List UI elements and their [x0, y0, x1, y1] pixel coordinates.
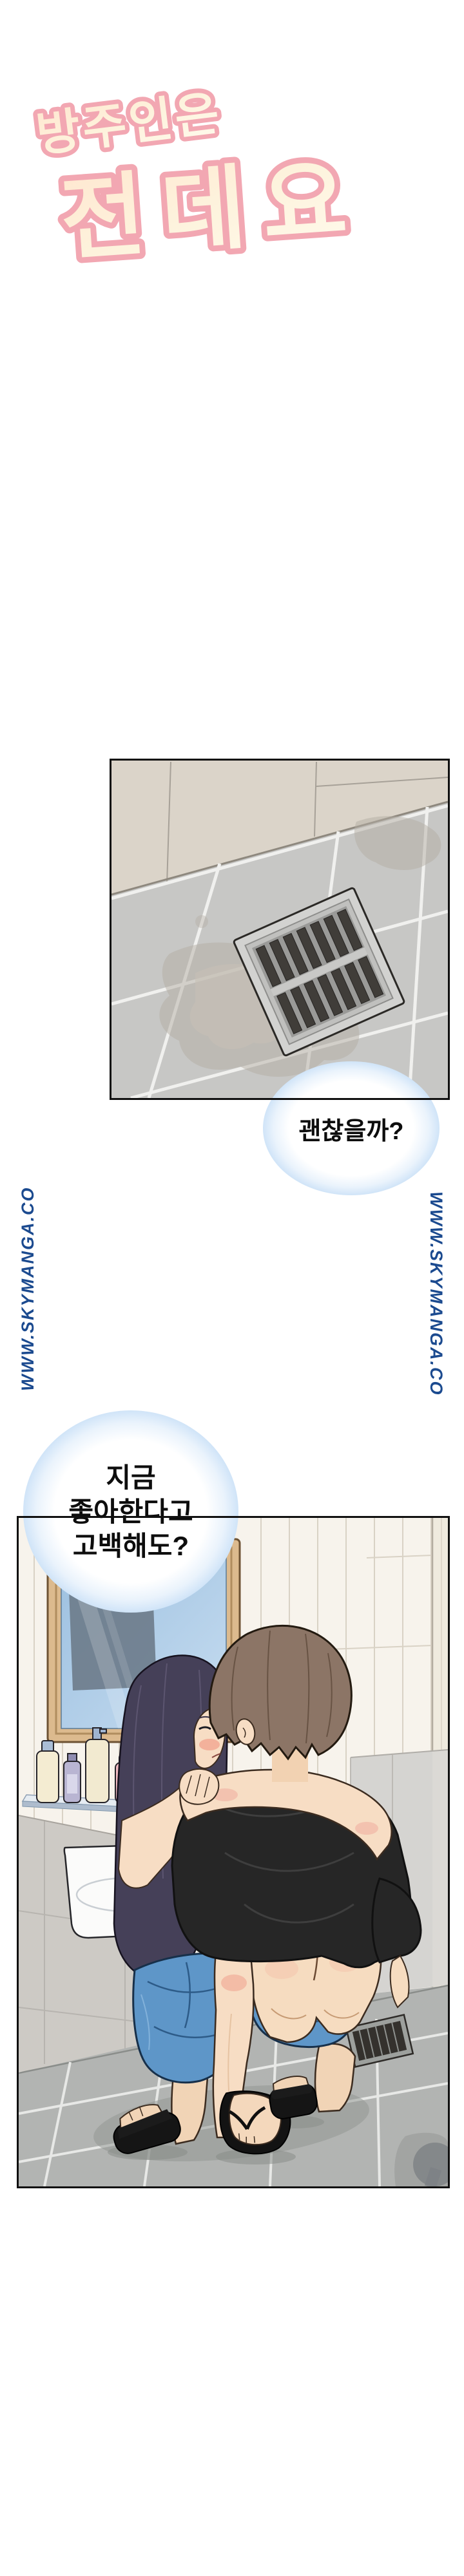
panel1-bottom-border: [110, 1098, 450, 1100]
watermark-left: WWW.SKYMANGA.CO: [18, 1187, 38, 1391]
shower-head-shadow: [394, 2133, 448, 2186]
cheek-blush: [199, 1739, 220, 1750]
thought-bubble-1: 괜찮을까?: [263, 1061, 440, 1195]
thought-bubble-2-line2: 좋아한다고: [68, 1495, 193, 1529]
thought-bubble-2: 지금 좋아한다고 고백해도?: [23, 1410, 238, 1613]
thought-bubble-2-line1: 지금: [106, 1461, 155, 1495]
panel-bathroom-floor: [110, 759, 450, 1100]
bottle-pump: [86, 1739, 109, 1803]
thought-bubble-2-line3: 고백해도?: [73, 1529, 189, 1563]
webtoon-page: 방주인은 전데요: [0, 0, 464, 2576]
series-title: 방주인은 전데요: [12, 68, 418, 312]
bottle-cream: [37, 1751, 59, 1803]
watermark-right: WWW.SKYMANGA.CO: [426, 1191, 446, 1396]
title-line-1: 방주인은: [34, 86, 224, 162]
panel-bathroom-couple: [17, 1516, 450, 2188]
title-line-2: 전데요: [57, 149, 367, 272]
thought-bubble-1-text: 괜찮을까?: [298, 1111, 403, 1146]
knee-blush: [221, 1975, 247, 1991]
panel2-top-border: [17, 1516, 450, 1518]
bathroom-floor-scene: [111, 761, 448, 1098]
man-hair: [209, 1625, 351, 1759]
bathroom-couple-scene: [19, 1518, 448, 2186]
woman-hand: [179, 1769, 218, 1804]
